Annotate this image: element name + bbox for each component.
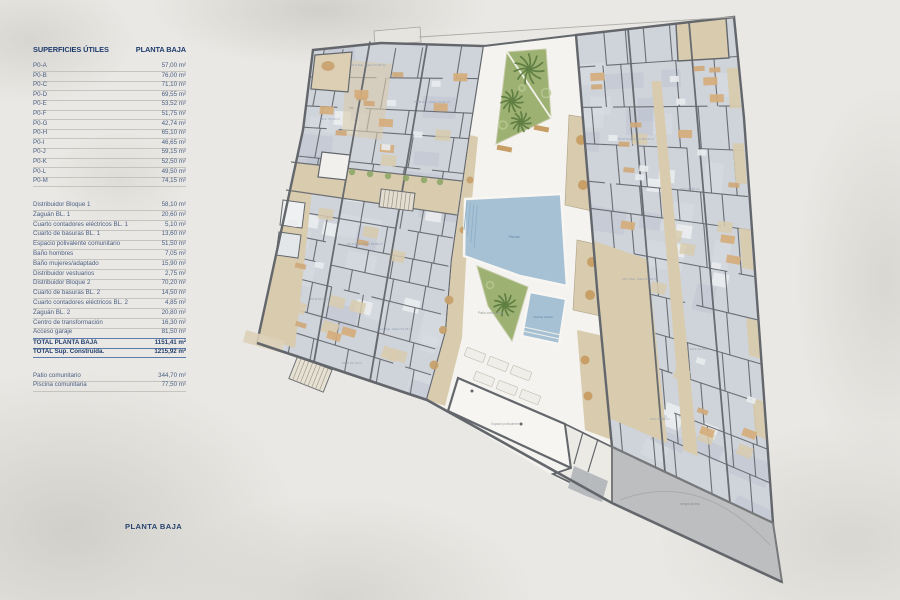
svg-text:Patio comunitario: Patio comunitario: [478, 311, 504, 315]
svg-text:P0-F Sup. Útiles 51,75 m²: P0-F Sup. Útiles 51,75 m²: [377, 327, 413, 331]
svg-text:Espacio polivalente: Espacio polivalente: [491, 422, 519, 426]
svg-text:P0-H Sup. Útiles 65,10 m²: P0-H Sup. Útiles 65,10 m²: [618, 137, 654, 141]
svg-text:P0-J Sup. Útiles 59,15 m²: P0-J Sup. Útiles 59,15 m²: [622, 277, 657, 281]
svg-text:Piscina: Piscina: [509, 235, 520, 239]
svg-text:P0-D Sup. Útiles 69,55 m²: P0-D Sup. Útiles 69,55 m²: [347, 242, 383, 246]
svg-text:P0-L 49,50 m²: P0-L 49,50 m²: [650, 417, 670, 421]
svg-text:P0-C 71,10 m²: P0-C 71,10 m²: [320, 117, 340, 121]
svg-text:P0-G 42,74 m²: P0-G 42,74 m²: [342, 361, 362, 365]
svg-text:P0-B Sup. Útiles 76,00 m²: P0-B Sup. Útiles 76,00 m²: [414, 100, 450, 104]
svg-text:Piscina infantil: Piscina infantil: [533, 315, 553, 319]
svg-text:P0-E 53,52 m²: P0-E 53,52 m²: [310, 297, 330, 301]
svg-text:P0-K 52,50 m²: P0-K 52,50 m²: [690, 347, 710, 351]
svg-text:P0-A Sup. Útiles 57,00 m²: P0-A Sup. Útiles 57,00 m²: [350, 63, 386, 67]
svg-text:P0-I 46,65 m²: P0-I 46,65 m²: [681, 187, 700, 191]
svg-text:rampa acceso: rampa acceso: [680, 502, 700, 506]
